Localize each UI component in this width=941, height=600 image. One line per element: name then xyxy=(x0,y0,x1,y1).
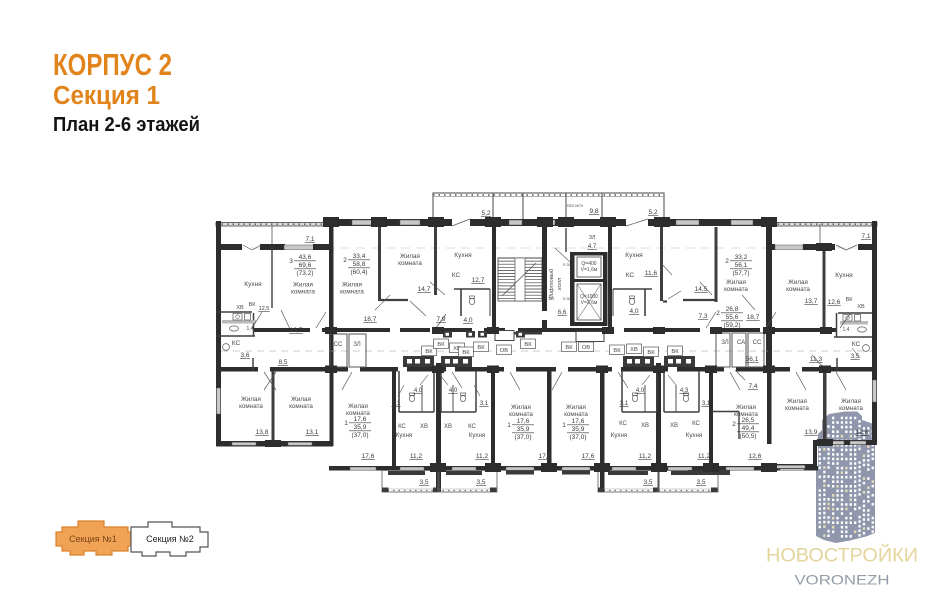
svg-text:КС: КС xyxy=(692,421,700,427)
svg-text:Кухня: Кухня xyxy=(625,252,643,259)
svg-text:ВК: ВК xyxy=(477,345,485,351)
svg-text:7,4: 7,4 xyxy=(748,383,757,390)
svg-text:35,9: 35,9 xyxy=(517,426,530,433)
svg-text:(50,5): (50,5) xyxy=(740,433,757,440)
svg-text:ВК: ВК xyxy=(462,350,470,356)
svg-text:Жилая: Жилая xyxy=(291,396,311,403)
svg-text:Жилая: Жилая xyxy=(241,396,261,403)
svg-text:НОВОСТРОЙКИ: НОВОСТРОЙКИ xyxy=(766,543,918,567)
svg-text:26,5: 26,5 xyxy=(742,417,755,424)
svg-text:комната: комната xyxy=(398,260,422,267)
svg-text:17,6: 17,6 xyxy=(539,453,552,460)
svg-text:VORONEZH: VORONEZH xyxy=(795,572,890,588)
svg-text:11,2: 11,2 xyxy=(410,453,423,460)
svg-text:4,0: 4,0 xyxy=(463,317,472,324)
svg-text:(37,0): (37,0) xyxy=(515,434,532,441)
svg-text:1: 1 xyxy=(562,422,566,429)
svg-text:комната: комната xyxy=(839,405,863,412)
svg-text:КС: КС xyxy=(232,340,241,347)
svg-text:6,6: 6,6 xyxy=(558,310,567,316)
svg-text:2: 2 xyxy=(716,310,720,317)
svg-text:12,6: 12,6 xyxy=(856,429,869,436)
svg-text:КС: КС xyxy=(626,272,635,279)
svg-text:18,7: 18,7 xyxy=(747,314,760,321)
svg-text:комната: комната xyxy=(239,403,263,410)
svg-text:Кухня: Кухня xyxy=(835,272,853,279)
svg-text:Жилая: Жилая xyxy=(736,404,756,411)
svg-text:ЗЛ: ЗЛ xyxy=(548,296,554,301)
svg-text:Жилая: Жилая xyxy=(342,282,362,289)
svg-text:ВК: ВК xyxy=(425,349,433,355)
svg-text:17,6: 17,6 xyxy=(517,418,530,425)
svg-text:ХВ: ХВ xyxy=(641,423,649,429)
svg-text:Жилая: Жилая xyxy=(293,282,313,289)
svg-text:Жилая: Жилая xyxy=(841,398,861,405)
svg-text:СС: СС xyxy=(753,340,762,346)
svg-text:58,8: 58,8 xyxy=(353,261,366,268)
svg-text:49,4: 49,4 xyxy=(742,425,755,432)
svg-text:3,5: 3,5 xyxy=(851,354,860,360)
svg-text:ЗЛ: ЗЛ xyxy=(721,340,729,346)
svg-text:17,6: 17,6 xyxy=(362,453,375,460)
svg-text:13,7: 13,7 xyxy=(805,298,818,305)
svg-text:КС: КС xyxy=(398,424,406,430)
svg-text:17,6: 17,6 xyxy=(582,453,595,460)
svg-text:ОВ: ОВ xyxy=(500,348,509,354)
svg-text:комната: комната xyxy=(564,411,588,418)
svg-text:комната: комната xyxy=(509,411,533,418)
svg-text:69,6: 69,6 xyxy=(299,262,312,269)
svg-text:3: 3 xyxy=(289,258,293,265)
svg-text:комната: комната xyxy=(340,289,364,296)
svg-text:33,2: 33,2 xyxy=(735,254,748,261)
svg-text:11,2: 11,2 xyxy=(639,453,652,460)
svg-text:12,7: 12,7 xyxy=(472,277,485,284)
svg-text:56,1: 56,1 xyxy=(735,262,748,269)
svg-text:11,3: 11,3 xyxy=(810,356,823,363)
svg-text:холл: холл xyxy=(557,277,563,291)
svg-text:Кухня: Кухня xyxy=(454,252,472,259)
svg-text:ВК: ВК xyxy=(671,349,679,355)
svg-text:(73,2): (73,2) xyxy=(297,270,314,277)
svg-text:ВК: ВК xyxy=(524,342,532,348)
svg-text:1: 1 xyxy=(344,420,348,427)
svg-text:12,5: 12,5 xyxy=(259,306,270,312)
svg-text:ХВ: ХВ xyxy=(670,423,678,429)
svg-text:2: 2 xyxy=(343,257,347,264)
svg-text:26,8: 26,8 xyxy=(726,306,739,313)
svg-text:Жилая: Жилая xyxy=(788,279,808,286)
svg-text:18,7: 18,7 xyxy=(364,316,377,323)
svg-text:3,1: 3,1 xyxy=(620,401,629,407)
svg-text:14,7: 14,7 xyxy=(418,286,431,293)
svg-text:ЗЛ: ЗЛ xyxy=(353,342,361,348)
svg-text:3,1: 3,1 xyxy=(480,401,489,407)
svg-text:11,2: 11,2 xyxy=(476,453,489,460)
svg-text:ВК: ВК xyxy=(437,342,445,348)
svg-text:5,2: 5,2 xyxy=(481,210,490,217)
svg-text:E:30: E:30 xyxy=(563,263,571,267)
svg-text:ЗЛ: ЗЛ xyxy=(589,235,596,241)
svg-text:(37,0): (37,0) xyxy=(570,434,587,441)
svg-text:3,5: 3,5 xyxy=(643,479,652,486)
svg-text:33,4: 33,4 xyxy=(353,253,366,260)
svg-text:V=2,6м: V=2,6м xyxy=(581,300,598,306)
svg-text:1,4: 1,4 xyxy=(247,326,254,332)
svg-text:КС: КС xyxy=(619,421,627,427)
svg-text:17,6: 17,6 xyxy=(354,416,367,423)
svg-text:V=1,6м: V=1,6м xyxy=(581,267,598,273)
svg-text:12,6: 12,6 xyxy=(749,453,762,460)
svg-text:Жилая: Жилая xyxy=(511,404,531,411)
svg-text:СС: СС xyxy=(334,342,343,348)
svg-text:16,7: 16,7 xyxy=(290,327,303,334)
svg-text:Кухня: Кухня xyxy=(244,281,262,288)
svg-text:(57,7): (57,7) xyxy=(733,270,750,277)
svg-text:11,2: 11,2 xyxy=(698,453,711,460)
svg-text:КОРПУС 2: КОРПУС 2 xyxy=(53,48,172,82)
svg-text:Кухня: Кухня xyxy=(686,432,703,439)
svg-text:11,6: 11,6 xyxy=(645,270,658,277)
svg-text:КС: КС xyxy=(452,272,461,279)
svg-text:13,8: 13,8 xyxy=(256,429,269,436)
svg-text:План 2-6 этажей: План 2-6 этажей xyxy=(53,114,200,136)
svg-text:Жилая: Жилая xyxy=(400,253,420,260)
svg-text:4,3: 4,3 xyxy=(680,388,689,394)
svg-text:3,6: 3,6 xyxy=(240,352,249,359)
svg-text:ВК: ВК xyxy=(565,345,573,351)
svg-text:Секция 1: Секция 1 xyxy=(53,82,160,110)
svg-text:1,4: 1,4 xyxy=(843,327,850,333)
svg-text:ХВ: ХВ xyxy=(420,424,428,430)
svg-text:СА: СА xyxy=(737,340,745,346)
svg-text:7,1: 7,1 xyxy=(861,233,870,240)
svg-text:7,3: 7,3 xyxy=(698,313,707,320)
svg-text:ХВ: ХВ xyxy=(236,305,244,311)
svg-text:7,9: 7,9 xyxy=(436,316,445,323)
svg-text:ОВ: ОВ xyxy=(582,345,591,351)
svg-text:комната: комната xyxy=(289,403,313,410)
svg-text:3,5: 3,5 xyxy=(696,479,705,486)
svg-text:Кухня: Кухня xyxy=(396,432,413,439)
svg-text:1: 1 xyxy=(507,422,511,429)
svg-text:4,7: 4,7 xyxy=(588,244,597,250)
svg-text:43,6: 43,6 xyxy=(299,254,312,261)
svg-text:ВК: ВК xyxy=(249,302,257,308)
svg-text:Жилая: Жилая xyxy=(348,403,368,410)
svg-text:2: 2 xyxy=(732,421,736,428)
svg-text:Жилая: Жилая xyxy=(726,279,746,286)
svg-text:13,9: 13,9 xyxy=(805,429,818,436)
svg-text:4,0: 4,0 xyxy=(629,308,638,315)
svg-text:ПБЗ МГН: ПБЗ МГН xyxy=(567,204,584,208)
svg-text:2: 2 xyxy=(725,258,729,265)
svg-text:ВК: ВК xyxy=(613,348,621,354)
svg-text:4,0: 4,0 xyxy=(636,388,645,394)
svg-text:(60,4): (60,4) xyxy=(351,269,368,276)
svg-text:3,5: 3,5 xyxy=(476,479,485,486)
svg-text:Жилая: Жилая xyxy=(566,404,586,411)
svg-text:9,8: 9,8 xyxy=(589,208,598,215)
svg-text:(59,2): (59,2) xyxy=(724,322,741,329)
svg-text:12,6: 12,6 xyxy=(828,299,841,306)
svg-text:3,1: 3,1 xyxy=(392,401,401,407)
svg-text:ВК: ВК xyxy=(647,350,655,356)
svg-text:Секция №2: Секция №2 xyxy=(146,534,194,544)
svg-text:ХВ: ХВ xyxy=(630,347,638,353)
svg-text:Кухня: Кухня xyxy=(611,432,628,439)
svg-text:55,6: 55,6 xyxy=(726,314,739,321)
svg-text:35,9: 35,9 xyxy=(354,424,367,431)
svg-text:ВК: ВК xyxy=(846,297,854,303)
svg-text:4,0: 4,0 xyxy=(414,388,423,394)
svg-text:ХВ: ХВ xyxy=(444,424,452,430)
svg-text:Жилая: Жилая xyxy=(787,398,807,405)
svg-text:3,1: 3,1 xyxy=(702,401,711,407)
svg-text:комната: комната xyxy=(291,289,315,296)
svg-text:4,0: 4,0 xyxy=(449,388,458,394)
svg-text:5,2: 5,2 xyxy=(648,209,657,216)
svg-text:Кухня: Кухня xyxy=(469,432,486,439)
svg-text:ХВ: ХВ xyxy=(857,304,865,310)
svg-text:3,5: 3,5 xyxy=(419,479,428,486)
svg-text:7,1: 7,1 xyxy=(305,236,314,243)
svg-text:комната: комната xyxy=(724,286,748,293)
svg-text:Секция №1: Секция №1 xyxy=(69,534,117,544)
svg-text:56,1: 56,1 xyxy=(746,356,759,363)
svg-text:8,5: 8,5 xyxy=(278,359,287,366)
svg-text:13,1: 13,1 xyxy=(306,429,319,436)
svg-text:35,9: 35,9 xyxy=(572,426,585,433)
svg-text:E:30: E:30 xyxy=(563,297,571,301)
svg-text:КС: КС xyxy=(468,424,476,430)
svg-text:17,6: 17,6 xyxy=(572,418,585,425)
svg-text:комната: комната xyxy=(785,405,809,412)
svg-text:комната: комната xyxy=(786,286,810,293)
svg-text:КС: КС xyxy=(852,341,861,348)
svg-text:14,5: 14,5 xyxy=(695,286,708,293)
svg-text:(37,0): (37,0) xyxy=(352,432,369,439)
